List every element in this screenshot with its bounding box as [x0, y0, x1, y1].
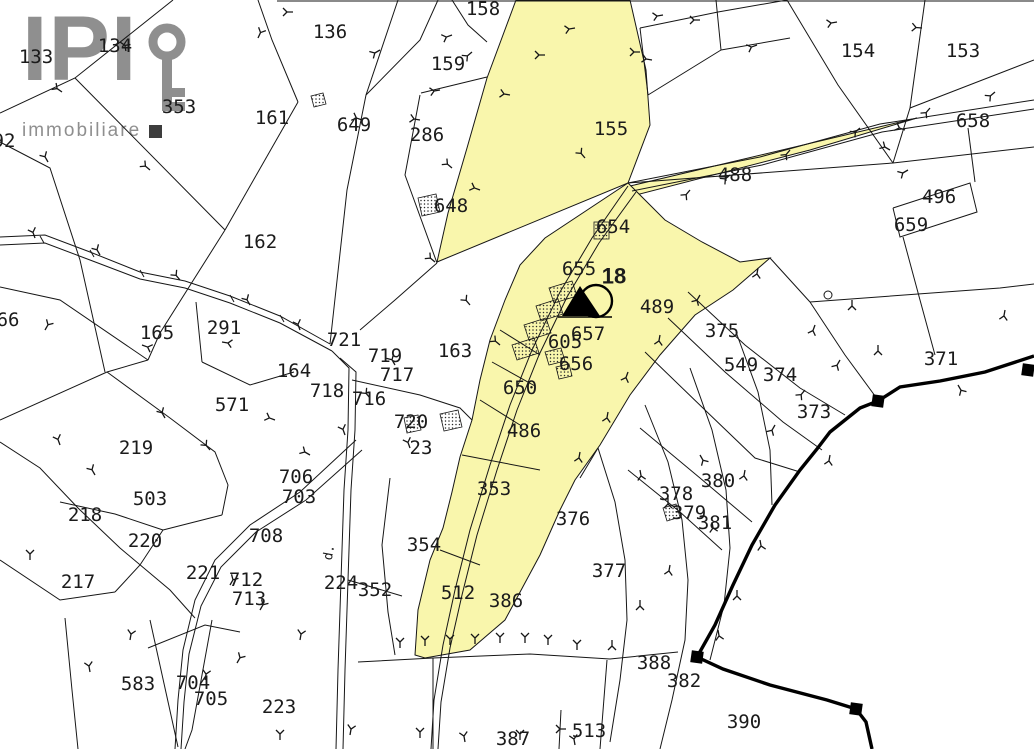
parcel-label-155: 155 [594, 118, 628, 140]
parcel-label-382: 382 [667, 670, 701, 692]
parcel-label-583: 583 [121, 673, 155, 695]
parcel-label-655: 655 [562, 258, 596, 280]
parcel-label-706: 706 [279, 466, 313, 488]
parcel-label-390: 390 [727, 711, 761, 733]
boundary-line [810, 284, 1034, 302]
parcel-label-386: 386 [489, 590, 523, 612]
boundary-tick-icon [496, 633, 504, 643]
boundary-line [330, 0, 398, 344]
boundary-line [0, 287, 148, 360]
parcel-label-654: 654 [596, 216, 630, 238]
boundary-tick-icon [826, 18, 837, 28]
boundary-line [640, 0, 787, 28]
parcel-label-605: 605 [548, 331, 582, 353]
parcel-label-291: 291 [207, 317, 241, 339]
parcel-label-371: 371 [924, 348, 958, 370]
boundary-tick-icon [739, 469, 749, 480]
boundary-tick-icon [879, 142, 892, 154]
boundary-tick-icon [756, 539, 766, 550]
boundary-tick-icon [848, 300, 856, 310]
parcel-label-153: 153 [946, 40, 980, 62]
boundary-tick-icon [636, 600, 644, 610]
parcel-label-219: 219 [119, 437, 153, 459]
parcel-label-373: 373 [797, 401, 831, 423]
parcel-label-721: 721 [327, 329, 361, 351]
border-marker-square [871, 394, 885, 408]
parcel-label-549: 549 [724, 354, 758, 376]
municipal-border-line [697, 356, 1034, 749]
parcel-label-23: 23 [410, 437, 433, 459]
boundary-line [810, 302, 878, 400]
boundary-tick-icon [42, 319, 54, 332]
boundary-tick-icon [87, 464, 99, 477]
parcel-label-512: 512 [441, 582, 475, 604]
boundary-line [688, 292, 845, 415]
boundary-line [770, 258, 810, 302]
border-marker-square [849, 702, 863, 716]
boundary-tick-icon [254, 27, 265, 39]
boundary-tick-icon [396, 638, 404, 648]
boundary-line [910, 0, 925, 108]
boundary-tick-icon [556, 725, 566, 733]
boundary-tick-icon [416, 728, 424, 738]
parcel-label-220: 220 [128, 530, 162, 552]
boundary-line [148, 625, 240, 648]
boundary-tick-icon [296, 629, 306, 640]
boundary-tick-icon [441, 31, 453, 42]
building [440, 410, 462, 431]
boundary-tick-icon [276, 730, 284, 740]
boundary-tick-icon [955, 383, 967, 396]
boundary-tick-icon [126, 629, 136, 640]
boundary-tick-icon [201, 440, 214, 453]
highlighted-parcels [415, 0, 917, 658]
survey-point-circle [824, 291, 832, 299]
parcel-label-650: 650 [503, 377, 537, 399]
boundary-line [0, 372, 107, 420]
municipal-border [690, 356, 1034, 749]
parcel-label-380: 380 [701, 470, 735, 492]
parcel-label-161: 161 [255, 107, 289, 129]
boundary-tick-icon [459, 731, 469, 742]
parcel-label-488: 488 [718, 164, 752, 186]
boundary-line [598, 448, 627, 742]
boundary-tick-icon [874, 345, 882, 355]
boundary-tick-icon [832, 358, 844, 371]
boundary-tick-icon [40, 151, 52, 164]
boundary-tick-icon [221, 338, 232, 348]
parcel-label-377: 377 [592, 560, 626, 582]
parcel-label-375: 375 [705, 320, 739, 342]
parcel-label-705: 705 [194, 688, 228, 710]
parcel-label-656: 656 [559, 353, 593, 375]
boundary-line [360, 263, 437, 330]
boundary-tick-icon [521, 633, 529, 643]
boundary-line [716, 0, 721, 50]
parcel-label-718: 718 [310, 380, 344, 402]
boundary-line [0, 142, 105, 372]
parcel-label-158: 158 [466, 0, 500, 20]
boundary-line [0, 560, 115, 600]
boundary-tick-icon [338, 424, 349, 436]
parcel-label-496: 496 [922, 186, 956, 208]
boundary-tick-icon [664, 564, 674, 575]
boundary-tick-icon [442, 159, 455, 172]
boundary-tick-icon [140, 161, 153, 174]
parcel-label-486: 486 [507, 420, 541, 442]
parcel-label-374: 374 [763, 364, 797, 386]
boundary-tick-icon [52, 83, 65, 95]
parcel-label-66: 66 [0, 309, 19, 331]
boundary-tick-icon [53, 434, 64, 446]
parcel-label-716: 716 [352, 388, 386, 410]
parcel-label-720: 720 [394, 411, 428, 433]
parcel-label-489: 489 [640, 296, 674, 318]
boundary-line [258, 0, 298, 102]
map-canvas: 1331343531361581591616492866489216215415… [0, 0, 1034, 749]
parcel-label-162: 162 [243, 231, 277, 253]
parcel-label-224: 224 [324, 572, 358, 594]
boundary-tick-icon [264, 413, 276, 424]
parcel-label-352: 352 [358, 579, 392, 601]
boundary-tick-icon [985, 89, 998, 102]
parcel-label-286: 286 [410, 124, 444, 146]
boundary-tick-icon [999, 309, 1009, 320]
boundary-tick-icon [84, 661, 94, 672]
parcel-label-658: 658 [956, 110, 990, 132]
road-name-label: d. [321, 543, 338, 561]
boundary-line [893, 108, 910, 163]
parcel-label-163: 163 [438, 340, 472, 362]
parcel-label-503: 503 [133, 488, 167, 510]
boundary-tick-icon [652, 11, 663, 21]
parcel-label-92: 92 [0, 130, 15, 152]
parcel-label-376: 376 [556, 508, 590, 530]
boundary-tick-icon [681, 187, 694, 200]
boundary-tick-icon [746, 41, 758, 52]
boundary-tick-icon [544, 635, 552, 645]
boundary-line [421, 77, 487, 93]
parcel-label-136: 136 [313, 21, 347, 43]
parcel-label-223: 223 [262, 696, 296, 718]
boundary-tick-icon [346, 724, 356, 735]
boundary-line [75, 78, 225, 230]
boundary-line [65, 618, 78, 749]
boundary-line [358, 652, 678, 662]
boundary-line [382, 478, 395, 655]
boundary-tick-icon [636, 469, 646, 480]
boundary-tick-icon [461, 295, 474, 308]
parcel-label-713: 713 [232, 588, 266, 610]
boundary-line [0, 442, 195, 618]
parcel-label-217: 217 [61, 571, 95, 593]
boundary-tick-icon [767, 423, 779, 436]
boundary-line [280, 315, 284, 322]
boundary-tick-icon [28, 227, 39, 239]
border-marker-square [690, 650, 704, 664]
boundary-tick-icon [697, 453, 709, 466]
boundary-tick-icon [234, 652, 246, 665]
boundary-line [721, 38, 790, 50]
boundary-line [668, 318, 822, 450]
boundary-tick-icon [897, 167, 910, 179]
parcel-label-659: 659 [894, 214, 928, 236]
parcel-label-18: 18 [602, 264, 626, 289]
boundary-tick-icon [26, 550, 34, 560]
boundary-line [648, 50, 721, 95]
parcel-label-381: 381 [698, 512, 732, 534]
border-marker-square [1021, 363, 1034, 377]
parcel-label-353: 353 [162, 96, 196, 118]
parcel-label-353: 353 [477, 478, 511, 500]
boundary-line [405, 95, 437, 263]
boundary-tick-icon [608, 640, 616, 650]
boundary-line [140, 270, 144, 277]
boundary-line [903, 237, 935, 355]
parcel-label-221: 221 [186, 562, 220, 584]
parcel-label-513: 513 [572, 720, 606, 742]
boundary-tick-icon [293, 319, 304, 331]
boundary-line [645, 405, 688, 749]
boundary-line [107, 360, 148, 372]
parcel-label-218: 218 [68, 504, 102, 526]
building [311, 93, 326, 107]
parcel-label-648: 648 [434, 195, 468, 217]
parcel-label-649: 649 [337, 114, 371, 136]
boundary-line [910, 60, 1034, 108]
highlighted-parcel [630, 118, 917, 196]
boundary-tick-icon [808, 324, 819, 336]
boundary-tick-icon [733, 590, 741, 600]
boundary-line [163, 515, 222, 530]
parcel-label-154: 154 [841, 40, 875, 62]
parcel-label-717: 717 [380, 364, 414, 386]
boundary-line [40, 236, 44, 243]
boundary-line [230, 295, 234, 302]
boundary-line [968, 128, 975, 182]
boundary-tick-icon [824, 454, 834, 465]
boundary-tick-icon [283, 8, 293, 16]
parcel-label-164: 164 [277, 360, 311, 382]
parcel-label-165: 165 [140, 322, 174, 344]
parcel-label-703: 703 [282, 486, 316, 508]
boundary-line [196, 302, 202, 362]
parcel-label-387: 387 [496, 728, 530, 749]
parcel-label-708: 708 [249, 525, 283, 547]
parcel-label-159: 159 [431, 53, 465, 75]
boundary-tick-icon [573, 640, 581, 650]
parcel-label-354: 354 [407, 534, 441, 556]
parcel-label-571: 571 [215, 394, 249, 416]
boundary-line [366, 0, 438, 95]
cadastral-map: IPI immobiliare 133134353136158159161649… [0, 0, 1034, 749]
boundary-tick-icon [299, 447, 312, 459]
parcel-label-134: 134 [98, 35, 132, 57]
parcel-label-133: 133 [19, 46, 53, 68]
